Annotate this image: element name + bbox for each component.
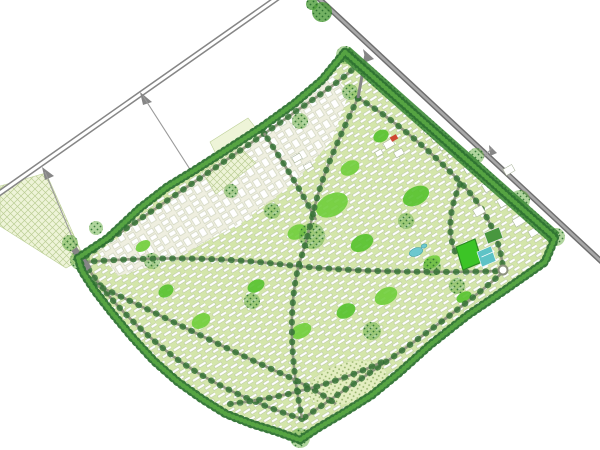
tree-cluster-canopy [264,203,280,219]
ramp-gore-1 [140,92,152,105]
tree-cluster-canopy [224,184,238,198]
tree-cluster-canopy [398,213,414,229]
access-road-to-fields [143,96,193,174]
tree-cluster-canopy [292,113,308,129]
tree-cluster-canopy [244,293,260,309]
master-plan-page [0,0,600,450]
tree-cluster-canopy [89,221,103,235]
tree-cluster-canopy [449,278,465,294]
master-plan-map [0,0,600,450]
roundabout [499,266,508,275]
tree-cluster-canopy [363,322,381,340]
